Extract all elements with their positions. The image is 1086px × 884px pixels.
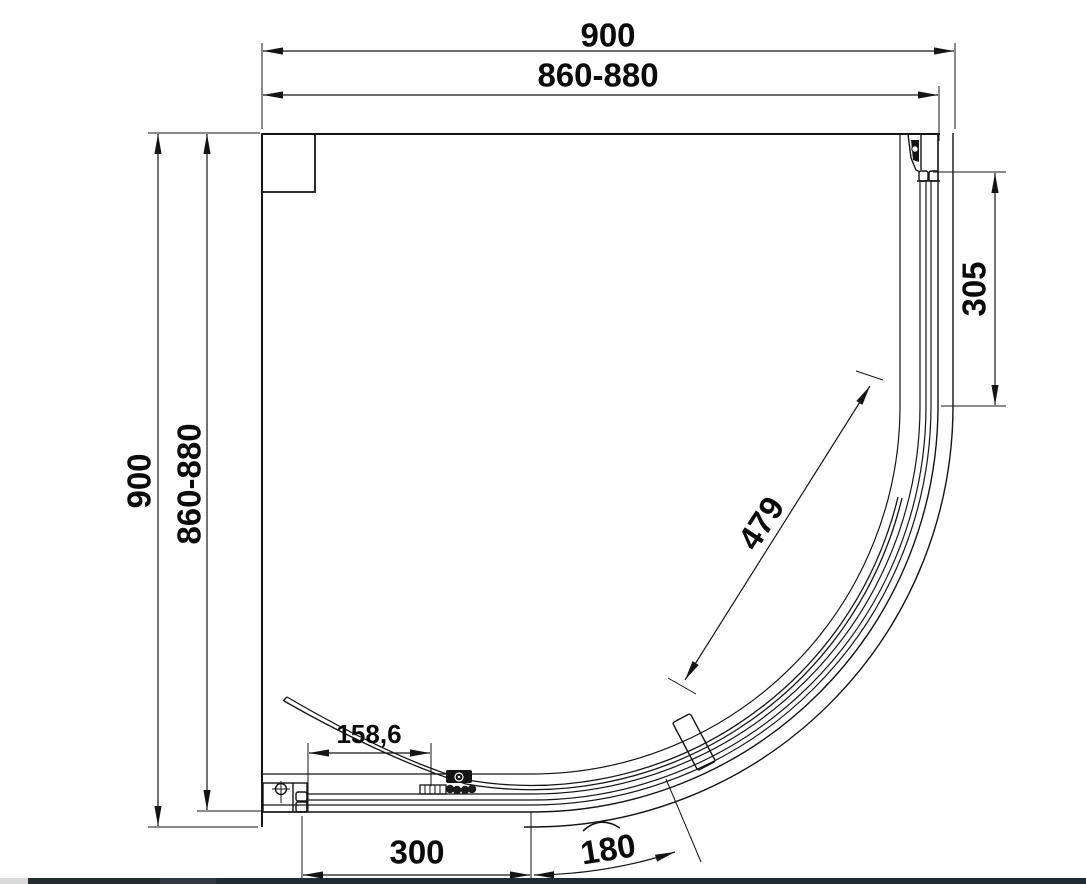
dim-arc-opening-label: 180 — [578, 828, 638, 869]
door-handle — [672, 713, 715, 770]
dim-top-overall-label: 900 — [580, 19, 635, 52]
page-edge-bar-segment — [160, 878, 216, 884]
shower-enclosure-drawing — [0, 0, 1086, 884]
dim-left-adjust-label: 860-880 — [173, 423, 206, 544]
page-edge-bar-segment — [28, 878, 160, 884]
dim-side-panel-label: 305 — [958, 261, 991, 316]
wall-bracket-top-right — [908, 134, 940, 181]
dim-door-inset-lines — [308, 743, 431, 812]
page-edge-bar-segment — [216, 878, 1086, 884]
dim-door-inset-label: 158,6 — [336, 721, 401, 747]
page-edge-bar — [0, 878, 1086, 884]
dim-top-adjust-lines — [263, 86, 939, 141]
page-edge-bar-segment — [0, 878, 28, 884]
wall-bracket-bottom-left — [263, 781, 307, 812]
dim-top-adjust-label: 860-880 — [537, 59, 658, 92]
drawing-canvas: 900 860-880 900 860-880 305 479 158,6 30… — [0, 0, 1086, 884]
dim-left-overall-label: 900 — [123, 453, 156, 508]
dim-opening-label: 300 — [389, 836, 444, 869]
